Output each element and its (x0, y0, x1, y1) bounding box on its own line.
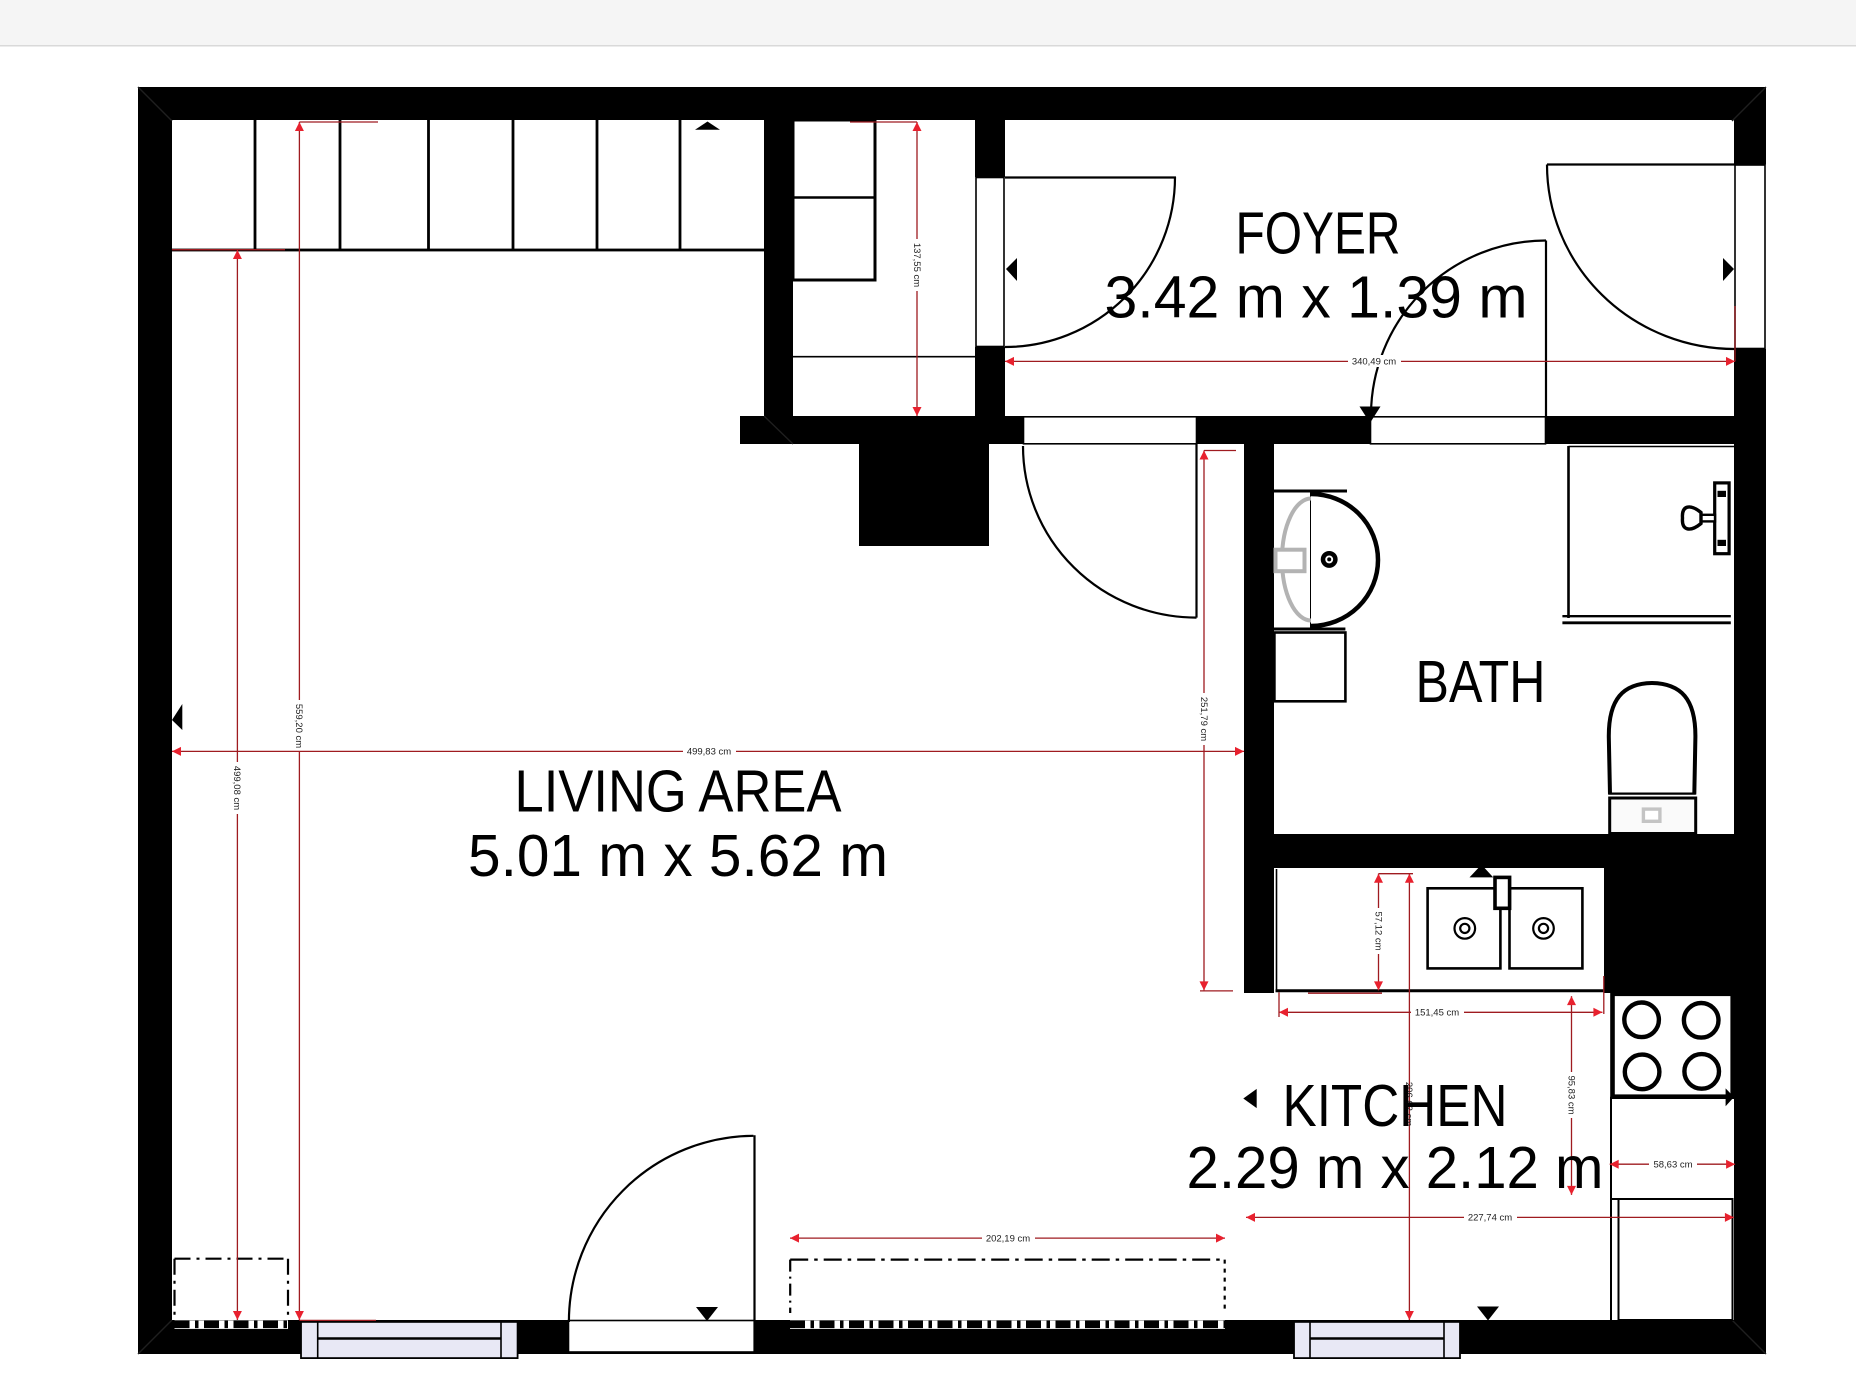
svg-text:95,83 cm: 95,83 cm (1565, 1075, 1576, 1114)
svg-text:BATH: BATH (1416, 649, 1546, 715)
svg-text:202,19 cm: 202,19 cm (986, 1233, 1030, 1244)
svg-text:137,55 cm: 137,55 cm (911, 243, 922, 287)
svg-text:LIVING AREA: LIVING AREA (515, 759, 843, 825)
svg-text:5.01 m x 5.62 m: 5.01 m x 5.62 m (468, 823, 888, 889)
svg-text:3.42 m x 1.39 m: 3.42 m x 1.39 m (1105, 264, 1528, 330)
svg-text:57,12 cm: 57,12 cm (1372, 911, 1383, 950)
svg-text:2.29 m x 2.12 m: 2.29 m x 2.12 m (1187, 1135, 1604, 1201)
svg-text:FOYER: FOYER (1236, 201, 1401, 267)
svg-text:499,83 cm: 499,83 cm (687, 747, 731, 758)
svg-text:340,49 cm: 340,49 cm (1352, 357, 1396, 368)
svg-text:251,79 cm: 251,79 cm (1198, 697, 1209, 741)
svg-text:58,63 cm: 58,63 cm (1653, 1159, 1692, 1170)
svg-text:KITCHEN: KITCHEN (1283, 1073, 1508, 1139)
svg-text:559,20 cm: 559,20 cm (293, 704, 304, 748)
svg-text:227,74 cm: 227,74 cm (1468, 1213, 1512, 1224)
svg-text:151,45 cm: 151,45 cm (1415, 1008, 1459, 1019)
svg-text:499,08 cm: 499,08 cm (231, 766, 242, 810)
